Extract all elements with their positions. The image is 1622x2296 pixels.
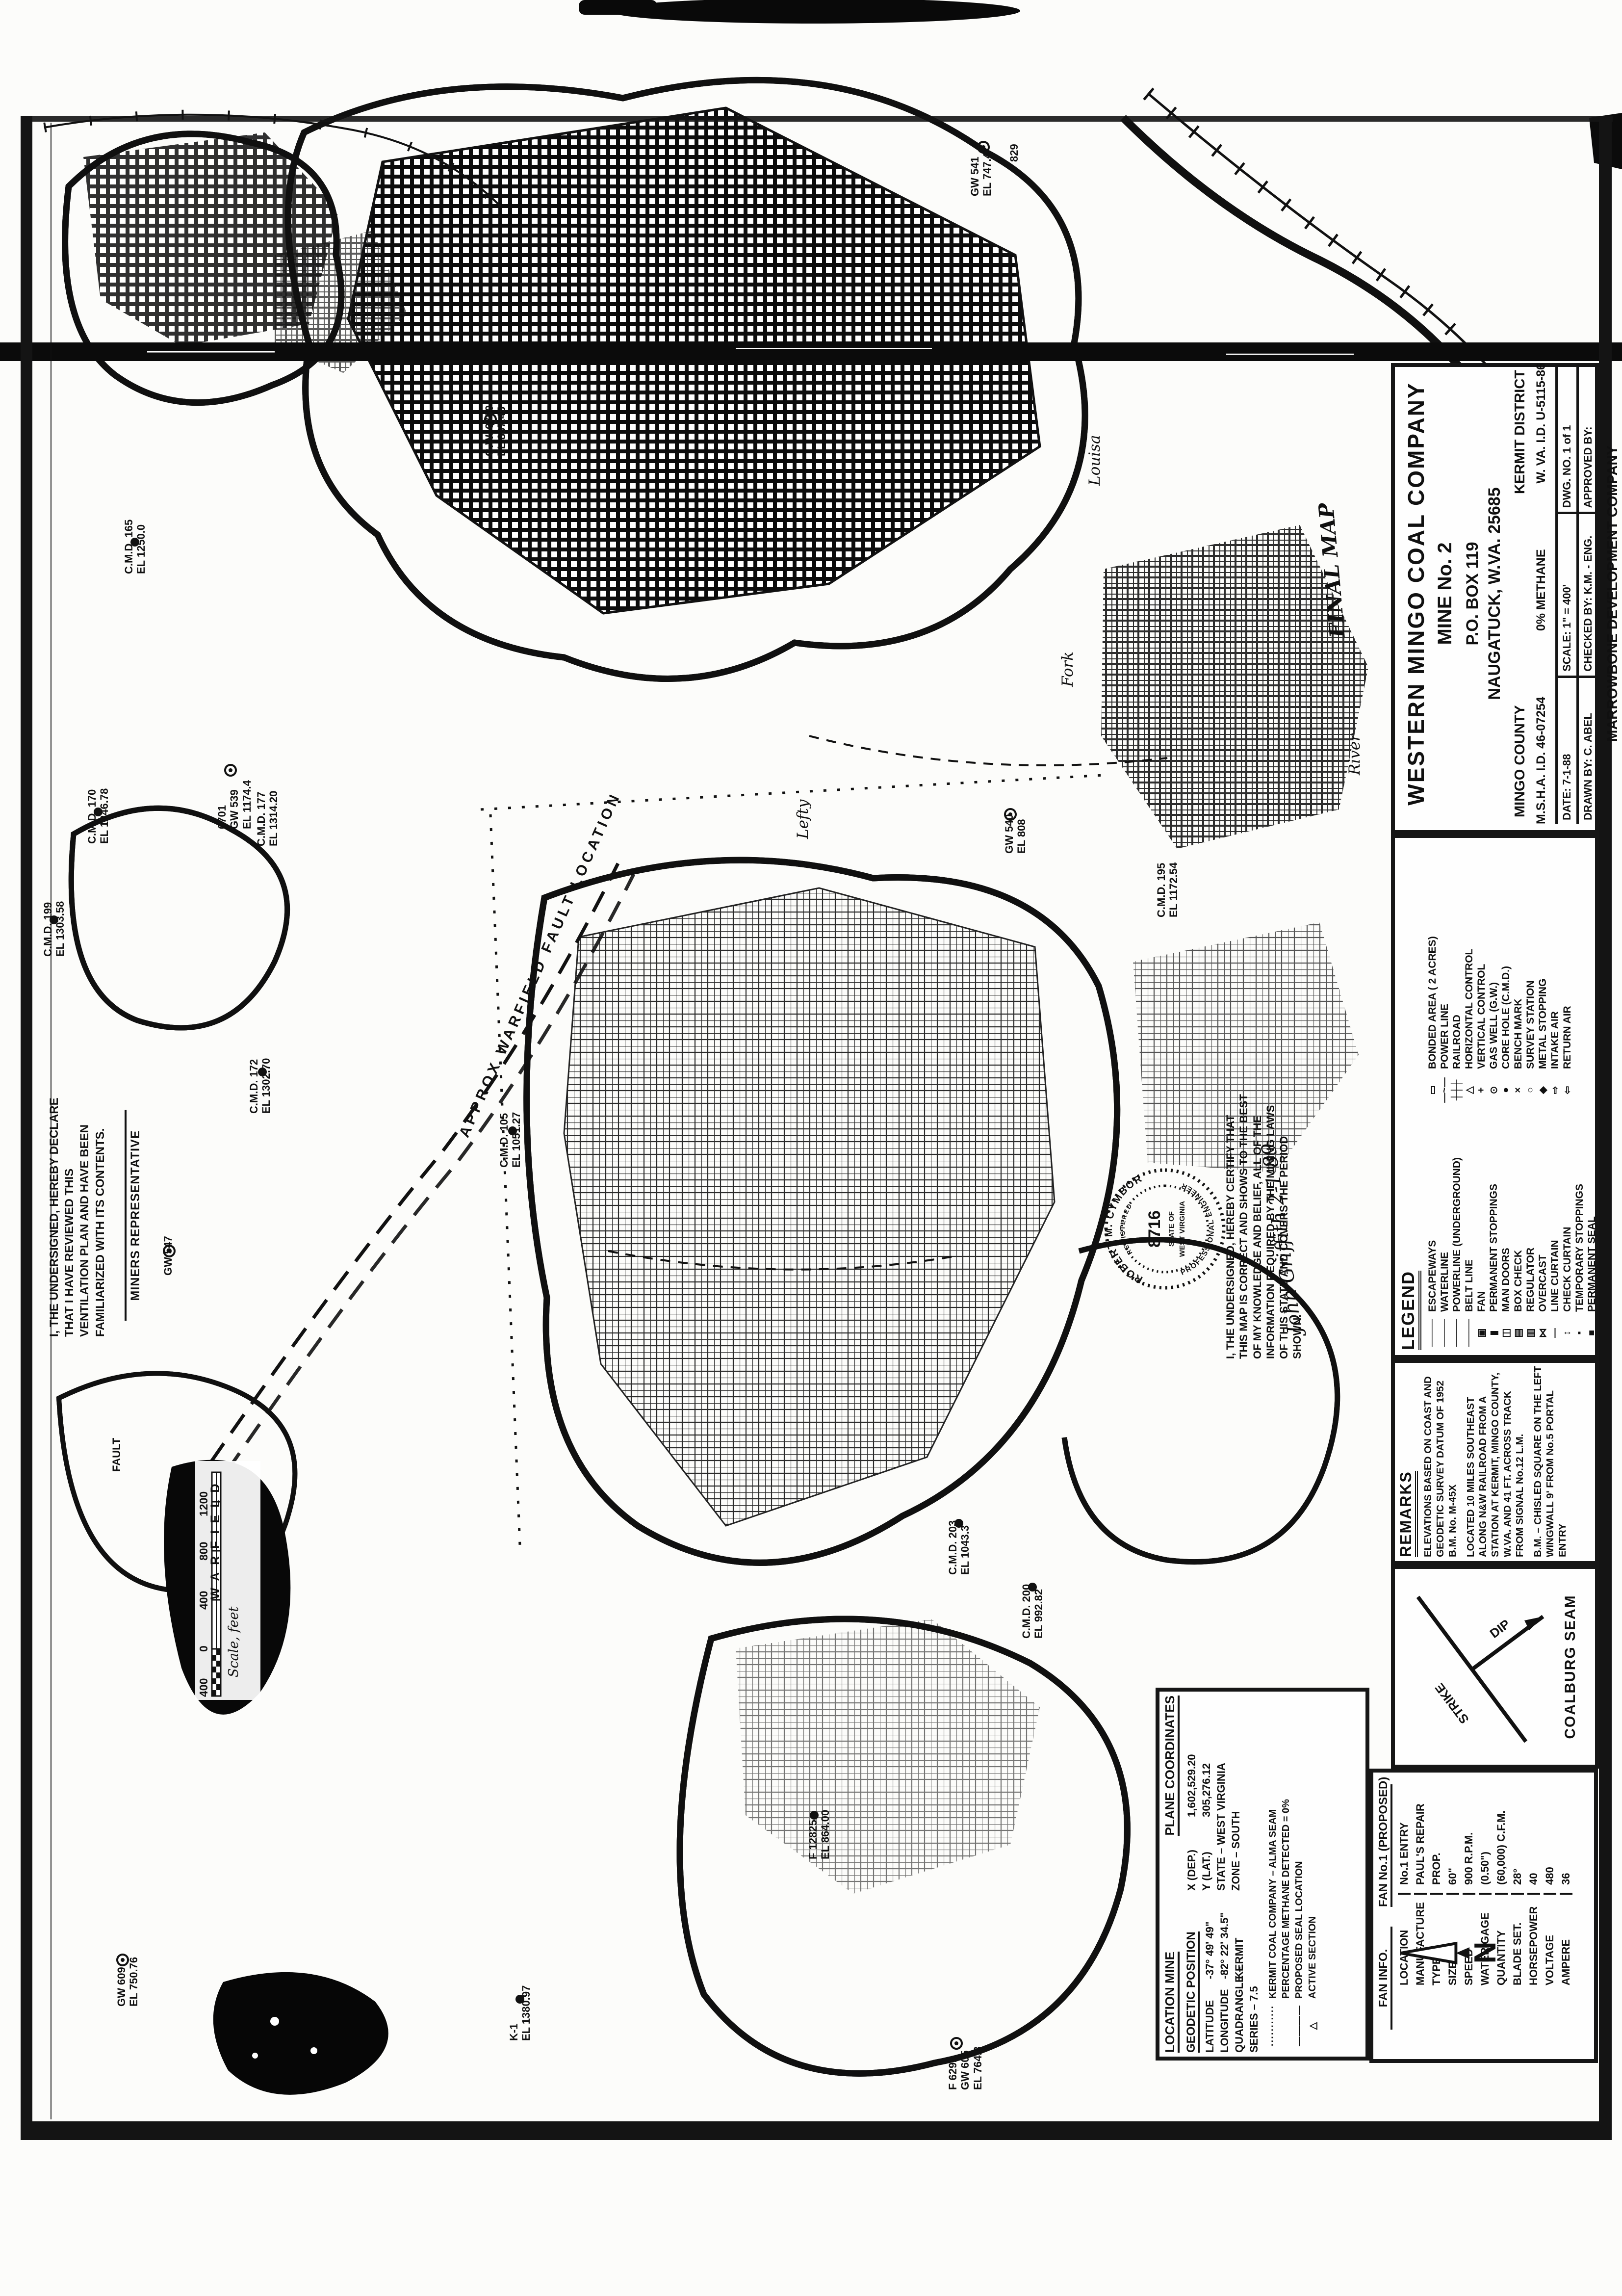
power-line-symbol: —~— <box>1439 1069 1450 1111</box>
north-indicator: N <box>1398 1921 1501 1984</box>
legend-item-label: HORIZONTAL CONTROL <box>1464 949 1475 1069</box>
legend-item-label: GAS WELL (G.W.) <box>1488 982 1500 1069</box>
proposed-seal-row: ————PROPOSED SEAL LOCATION <box>1293 1696 1306 2053</box>
longitude-value: -82° 22' 34.5" <box>1218 1912 1231 1979</box>
powerline-underground-symbol: ──── <box>1451 1312 1463 1354</box>
stream-name-label: River <box>1346 734 1364 775</box>
legend-item-label: FAN <box>1476 1291 1488 1312</box>
strike-dip-diagram: STRIKE DIP <box>1396 1570 1558 1764</box>
legend-item: ⋈OVERCAST <box>1537 1111 1549 1354</box>
legend-item-label: WATERLINE <box>1439 1252 1451 1312</box>
dotted-line-2 <box>490 814 520 1545</box>
legend-item-label: RETURN AIR <box>1562 1006 1573 1069</box>
fan-row-value: 36 <box>1560 1873 1572 1895</box>
legend-item-label: REGULATOR <box>1525 1248 1537 1312</box>
zone-value: ZONE – SOUTH <box>1230 1811 1242 1891</box>
legend-item-label: PERMANENT SEAL <box>1586 1216 1598 1312</box>
fan-row: HORSEPOWER40 <box>1525 1773 1542 1985</box>
x-value: 1,602,529.20 <box>1185 1754 1198 1817</box>
zone-row: ZONE – SOUTH <box>1229 1704 1243 1891</box>
x-coordinate-row: X (DEP.)1,602,529.20 <box>1184 1704 1199 1891</box>
legend-item: ○SURVEY STATION <box>1524 846 1537 1111</box>
final-map-text: FINAL MAP <box>1318 548 1350 639</box>
map-point-label: 6701 GW 539 EL 1174.4 <box>216 780 253 829</box>
stream-name-label: Louisa <box>1086 435 1104 486</box>
scanned-mine-map-sheet: WESTERN MINGO COAL COMPANY MINE No. 2 P.… <box>0 0 1622 2296</box>
map-point-label: GW 540 EL 808 <box>1003 814 1028 854</box>
north-arrow-icon <box>1398 1921 1470 1984</box>
north-label: N <box>1470 1942 1501 1964</box>
miners-declaration: I, THE UNDERSIGNED, HEREBY DECLARE THAT … <box>47 1094 140 1337</box>
bench-mark-symbol: × <box>1513 1069 1524 1111</box>
core-hole-symbol: ● <box>1500 1069 1512 1111</box>
quadrangle-value: KERMIT <box>1233 1938 1246 1979</box>
fan-row: BLADE SET.28° <box>1509 1773 1525 1985</box>
legend-item-label: CORE HOLE (C.M.D.) <box>1500 966 1512 1069</box>
legend-item: ●CORE HOLE (C.M.D.) <box>1500 846 1512 1111</box>
y-value: 305,276.12 <box>1200 1763 1213 1817</box>
legend-item: ↕CHECK CURTAIN <box>1561 1111 1573 1354</box>
legend-item: —~—POWER LINE <box>1439 846 1451 1111</box>
solid-line-symbol: ———— <box>1294 1999 1305 2053</box>
fan-row: VOLTAGE480 <box>1542 1773 1558 1985</box>
railroad-symbol: ┼┼┼ <box>1451 1069 1463 1111</box>
legend-item-label: OVERCAST <box>1537 1254 1549 1312</box>
map-point-label: G.W. 6700 EL 867.45 <box>483 405 508 456</box>
stream-name-label: Fork <box>1059 652 1077 687</box>
legend-item: △HORIZONTAL CONTROL <box>1463 846 1475 1111</box>
fan-row-value: 480 <box>1544 1867 1556 1895</box>
map-point-label: C.M.D. 105 EL 1051.27 <box>498 1112 523 1168</box>
longitude-row: LONGITUDE-82° 22' 34.5" <box>1217 1891 1232 2053</box>
dwg-label: DWG. NO. <box>1561 456 1573 508</box>
legend-item-label: VERTICAL CONTROL <box>1476 964 1488 1069</box>
series-row: SERIES – 7.5 <box>1247 1891 1262 2053</box>
map-point-label: K-1 EL 1380.97 <box>508 1985 533 2041</box>
scale-tick: 0 <box>197 1645 210 1652</box>
quadrangle-row: QUADRANGLE –KERMIT <box>1232 1891 1247 2053</box>
remark-item: ELEVATIONS BASED ON COAST AND GEODETIC S… <box>1422 1364 1459 1557</box>
legend-item: ┼┼┼RAILROAD <box>1451 846 1463 1111</box>
map-point-label: C.M.D. 172 EL 1302.70 <box>248 1058 273 1114</box>
firm-name: MARROWBONE DEVELOPMENT COMPANY <box>1604 363 1622 824</box>
scale-value: 1" = 400' <box>1561 584 1573 628</box>
fan-row-value: No.1 ENTRY <box>1398 1822 1411 1895</box>
legend-item-label: BELT LINE <box>1464 1259 1475 1312</box>
remarks: REMARKS ELEVATIONS BASED ON COAST AND GE… <box>1396 1364 1594 1560</box>
map-point-label: C.M.D. 200 EL 992.82 <box>1020 1584 1045 1639</box>
line-curtain-symbol: — <box>1549 1312 1561 1354</box>
map-point-label: F 12825 EL 864.00 <box>807 1810 832 1859</box>
miners-representative-label: MINERS REPRESENTATIVE <box>129 1094 143 1337</box>
seal-registered: REGISTERED <box>1119 1202 1134 1256</box>
final-map-note: FINAL MAP <box>1322 549 1376 638</box>
seal-state-line2: WEST VIRGINIA <box>1178 1201 1186 1257</box>
scale-caption: Scale, feet <box>226 1464 241 1677</box>
dotted-line-symbol: ··········· <box>1267 1999 1279 2053</box>
mine-workings-light <box>564 888 1055 1526</box>
escapeways-symbol: ──── <box>1427 1312 1438 1354</box>
map-point-label: F 6292 GW 605 EL 764.3 <box>947 2046 984 2090</box>
gas-well-symbol: ⊙ <box>1488 1069 1500 1111</box>
legend-item-label: RAILROAD <box>1451 1015 1463 1069</box>
warfield-word-label: WARFIELD <box>208 1476 223 1599</box>
legend-item-label: BENCH MARK <box>1513 999 1524 1070</box>
scale-bar: 400 0 400 800 1200 Scale, feet <box>195 1461 260 1700</box>
map-point-label: 829 <box>1008 144 1020 162</box>
scale-label: SCALE: <box>1561 631 1573 672</box>
fan-row-value: 28° <box>1511 1869 1524 1895</box>
legend-item: ⊙GAS WELL (G.W.) <box>1488 846 1500 1111</box>
plane-coordinates-title: PLANE COORDINATES <box>1162 1696 1180 1836</box>
location-mine-title: LOCATION MINE <box>1162 1952 1180 2053</box>
x-label: X (DEP.) <box>1185 1817 1198 1891</box>
engineer-signature: John Griffith 2-1-89 <box>1275 1207 1344 1334</box>
fan-row-label: HORSEPOWER <box>1527 1895 1540 1985</box>
regulator-symbol: ▥ <box>1524 1312 1537 1354</box>
proposed-seal-note: PROPOSED SEAL LOCATION <box>1294 1861 1305 1999</box>
remarks-title: REMARKS <box>1397 1471 1418 1557</box>
legend-item: ────BELT LINE <box>1463 1111 1475 1354</box>
state-row: STATE – WEST VIRGINIA <box>1214 1704 1229 1891</box>
legend-item: ⇦RETURN AIR <box>1561 846 1573 1111</box>
district-label: KERMIT DISTRICT <box>1512 370 1528 494</box>
seal-state-line1: STATE OF <box>1167 1211 1176 1247</box>
legend-item-label: BONDED AREA ( 2 ACRES) <box>1427 936 1439 1069</box>
fold-crease <box>0 342 1622 361</box>
fan-row-label: VOLTAGE <box>1544 1895 1556 1985</box>
strike-label: STRIKE <box>1432 1680 1471 1726</box>
active-section-note: ACTIVE SECTION <box>1307 1916 1318 1999</box>
engineer-seal: ROBERT M. CYMBOR PROFESSIONAL ENGINEER R… <box>1101 1165 1229 1293</box>
location-block: LOCATION MINE PLANE COORDINATES GEODETIC… <box>1160 1692 1365 2057</box>
seal-number: 8716 <box>1145 1210 1164 1248</box>
belt-line-symbol: ──── <box>1464 1312 1475 1354</box>
waterline-symbol: ──── <box>1439 1312 1450 1354</box>
approved-by-label: APPROVED BY: <box>1582 426 1594 508</box>
fan-symbol: ▣ <box>1475 1312 1488 1354</box>
dwg-value: 1 of 1 <box>1561 425 1573 453</box>
check-curtain-symbol: ↕ <box>1562 1312 1573 1354</box>
title-block: WESTERN MINGO COAL COMPANY MINE No. 2 P.… <box>1396 358 1601 829</box>
legend-item: ────ESCAPEWAYS <box>1426 1111 1439 1354</box>
remark-item: LOCATED 10 MILES SOUTHEAST ALONG N&W RAI… <box>1465 1364 1526 1557</box>
seam-block: STRIKE DIP COALBURG SEAM <box>1396 1570 1594 1764</box>
svg-text:REGISTERED: REGISTERED <box>1119 1202 1134 1256</box>
triangle-symbol: △ <box>1307 1999 1319 2053</box>
po-box-line: P.O. BOX 119 <box>1463 363 1482 824</box>
legend-item: ▣FAN <box>1475 1111 1488 1354</box>
legend-item-label: POWERLINE (UNDERGROUND) <box>1451 1157 1463 1312</box>
map-border-top <box>21 116 1613 122</box>
date-value: 7-1-88 <box>1561 754 1573 785</box>
temporary-stoppings-symbol: ▪ <box>1574 1312 1585 1354</box>
county-label: MINGO COUNTY <box>1512 705 1528 817</box>
methane-note-row: PERCENTAGE METHANE DETECTED = 0% <box>1280 1696 1293 2053</box>
fan-row-value: PROP. <box>1430 1852 1443 1895</box>
longitude-label: LONGITUDE <box>1218 1979 1231 2053</box>
man-doors-symbol: ◫ <box>1500 1312 1512 1354</box>
msha-id: M.S.H.A. I.D. 46-07254 <box>1534 697 1548 824</box>
remark-item: B.M. – CHISLED SQUARE ON THE LEFT WINGWA… <box>1532 1364 1569 1557</box>
latitude-row: LATITUDE-37° 49' 49" <box>1203 1891 1217 2053</box>
fault-line <box>211 863 618 1462</box>
map-point-label: GW 547 <box>162 1236 174 1276</box>
map-point-label: C.M.D. 165 EL 1250.0 <box>123 520 148 574</box>
legend-item: ■PERMANENT SEAL <box>1586 1111 1598 1354</box>
legend-item-label: TEMPORARY STOPPINGS <box>1574 1184 1586 1312</box>
map-point-label: GW 609 EL 750.76 <box>115 1957 140 2007</box>
active-section-row: △ACTIVE SECTION <box>1306 1696 1319 2053</box>
legend-title: LEGEND <box>1398 1271 1421 1350</box>
permanent-seal-symbol: ■ <box>1586 1312 1597 1354</box>
scale-tick: 400 <box>197 1678 210 1697</box>
city-line: NAUGATUCK, W.VA. 25685 <box>1485 363 1504 824</box>
methane-detected-note: PERCENTAGE METHANE DETECTED = 0% <box>1281 1799 1292 1999</box>
map-point-label: C.M.D. 199 EL 1303.58 <box>42 901 67 957</box>
legend-item-label: LINE CURTAIN <box>1549 1240 1561 1312</box>
legend-item-label: SURVEY STATION <box>1525 981 1537 1069</box>
return-air-arrow-icon: ⇦ <box>1561 1069 1573 1111</box>
alma-seam-legend-row: ···········KERMIT COAL COMPANY – ALMA SE… <box>1266 1696 1280 2053</box>
legend-item: ⇨INTAKE AIR <box>1549 846 1561 1111</box>
bonded-area-symbol: ▭ <box>1426 1069 1439 1111</box>
permanent-stoppings-symbol: ▮ <box>1488 1312 1500 1354</box>
legend-item: ▮PERMANENT STOPPINGS <box>1488 1111 1500 1354</box>
legend-item: ×BENCH MARK <box>1512 846 1524 1111</box>
methane-note: 0% METHANE <box>1534 549 1548 631</box>
legend-item-label: ESCAPEWAYS <box>1427 1240 1439 1312</box>
legend-item-label: BOX CHECK <box>1513 1250 1524 1312</box>
overcast-symbol: ⋈ <box>1537 1312 1549 1354</box>
stream-name-label: Lefty <box>795 800 812 839</box>
map-point-label: C.M.D. 177 EL 1314.20 <box>255 791 280 846</box>
latitude-value: -37° 49' 49" <box>1204 1922 1216 1979</box>
seam-name: COALBURG SEAM <box>1562 1570 1579 1764</box>
legend-item-label: MAN DOORS <box>1500 1248 1512 1312</box>
series-value: SERIES – 7.5 <box>1248 1986 1261 2053</box>
drawn-by-value: C. ABEL <box>1582 713 1594 756</box>
legend-item: ◆METAL STOPPING <box>1537 846 1549 1111</box>
legend: LEGEND ────ESCAPEWAYS ────WATERLINE ────… <box>1396 839 1594 1354</box>
fan-no1-header: FAN No.1 (PROPOSED) <box>1377 1784 1392 1907</box>
legend-item: ▤BOX CHECK <box>1512 1111 1524 1354</box>
legend-item-label: PERMANENT STOPPINGS <box>1488 1184 1500 1312</box>
y-label: Y (LAT.) <box>1200 1817 1213 1891</box>
company-name: WESTERN MINGO COAL COMPANY <box>1403 363 1429 824</box>
fan-row-label: BLADE SET. <box>1511 1895 1524 1985</box>
dip-label: DIP <box>1487 1617 1513 1641</box>
fan-info-header: FAN INFO. <box>1377 1927 1392 2030</box>
latitude-label: LATITUDE <box>1204 1979 1216 2053</box>
legend-item-label: METAL STOPPING <box>1537 979 1549 1069</box>
state-id: W. VA. I.D. U-5115-86 <box>1534 363 1548 483</box>
fan-row-value: 900 R.P.M. <box>1463 1832 1475 1895</box>
metal-stopping-symbol: ◆ <box>1537 1069 1549 1111</box>
mine-name: MINE No. 2 <box>1434 363 1456 824</box>
signature-line <box>125 1110 127 1321</box>
legend-item: ────WATERLINE <box>1439 1111 1451 1354</box>
legend-item: ▭BONDED AREA ( 2 ACRES) <box>1426 846 1439 1111</box>
legend-item-label: INTAKE AIR <box>1549 1011 1561 1069</box>
quadrangle-label: QUADRANGLE – <box>1233 1979 1246 2053</box>
legend-item-label: CHECK CURTAIN <box>1562 1227 1573 1312</box>
declaration-text: I, THE UNDERSIGNED, HEREBY DECLARE THAT … <box>47 1094 108 1337</box>
box-check-symbol: ▤ <box>1512 1312 1524 1354</box>
horizontal-control-symbol: △ <box>1463 1069 1475 1111</box>
legend-item-label: POWER LINE <box>1439 1004 1451 1069</box>
map-point-label: C.M.D. 195 EL 1172.54 <box>1155 862 1180 917</box>
intake-air-arrow-icon: ⇨ <box>1549 1069 1561 1111</box>
legend-item: ────POWERLINE (UNDERGROUND) <box>1451 1111 1463 1354</box>
vertical-control-symbol: + <box>1476 1069 1487 1111</box>
legend-item: +VERTICAL CONTROL <box>1475 846 1488 1111</box>
fan-row-value: 40 <box>1527 1873 1540 1895</box>
checked-by-label: CHECKED BY: <box>1582 598 1594 672</box>
map-border-bottom <box>21 2121 1612 2140</box>
map-point-label: GW 541 EL 747.4 <box>969 153 994 196</box>
fan-row: AMPERE36 <box>1558 1773 1574 1985</box>
legend-item: ◫MAN DOORS <box>1500 1111 1512 1354</box>
geodetic-position-title: GEODETIC POSITION <box>1184 1931 1200 2053</box>
drawn-by-label: DRAWN BY: <box>1582 759 1594 820</box>
y-coordinate-row: Y (LAT.)305,276.12 <box>1199 1704 1214 1891</box>
checked-by-value: K.M. - ENG. <box>1582 536 1594 595</box>
fan-row-label: AMPERE <box>1560 1895 1572 1985</box>
dotted-line <box>481 775 1104 809</box>
fan-row-value: 60" <box>1446 1868 1459 1895</box>
fan-table: FAN INFO. FAN No.1 (PROPOSED) LOCATIONNo… <box>1373 1773 1593 2059</box>
fan-row-value: (60,000) C.F.M. <box>1495 1810 1508 1895</box>
state-value: STATE – WEST VIRGINIA <box>1215 1763 1228 1891</box>
scan-blob-bottom <box>213 1972 388 2095</box>
legend-item: ▥REGULATOR <box>1524 1111 1537 1354</box>
map-point-label: C.M.D. 203 EL 1043.3 <box>947 1520 972 1575</box>
alma-seam-note: KERMIT COAL COMPANY – ALMA SEAM <box>1267 1809 1279 1999</box>
scan-mark-top <box>579 0 657 15</box>
map-border-left <box>21 116 32 2138</box>
map-point-label: C.M.D. 170 EL 1246.78 <box>86 788 111 844</box>
legend-item: ▪TEMPORARY STOPPINGS <box>1573 1111 1586 1354</box>
fault-word-label: FAULT <box>110 1438 123 1472</box>
legend-item: —LINE CURTAIN <box>1549 1111 1561 1354</box>
fan-row-value: (0.50") <box>1479 1852 1492 1895</box>
date-label: DATE: <box>1561 788 1573 820</box>
scan-tear-top <box>608 0 1020 24</box>
fan-row-value: PAUL'S REPAIR <box>1414 1803 1427 1895</box>
survey-station-symbol: ○ <box>1525 1069 1536 1111</box>
mine-workings-light-3 <box>736 1619 1040 1894</box>
